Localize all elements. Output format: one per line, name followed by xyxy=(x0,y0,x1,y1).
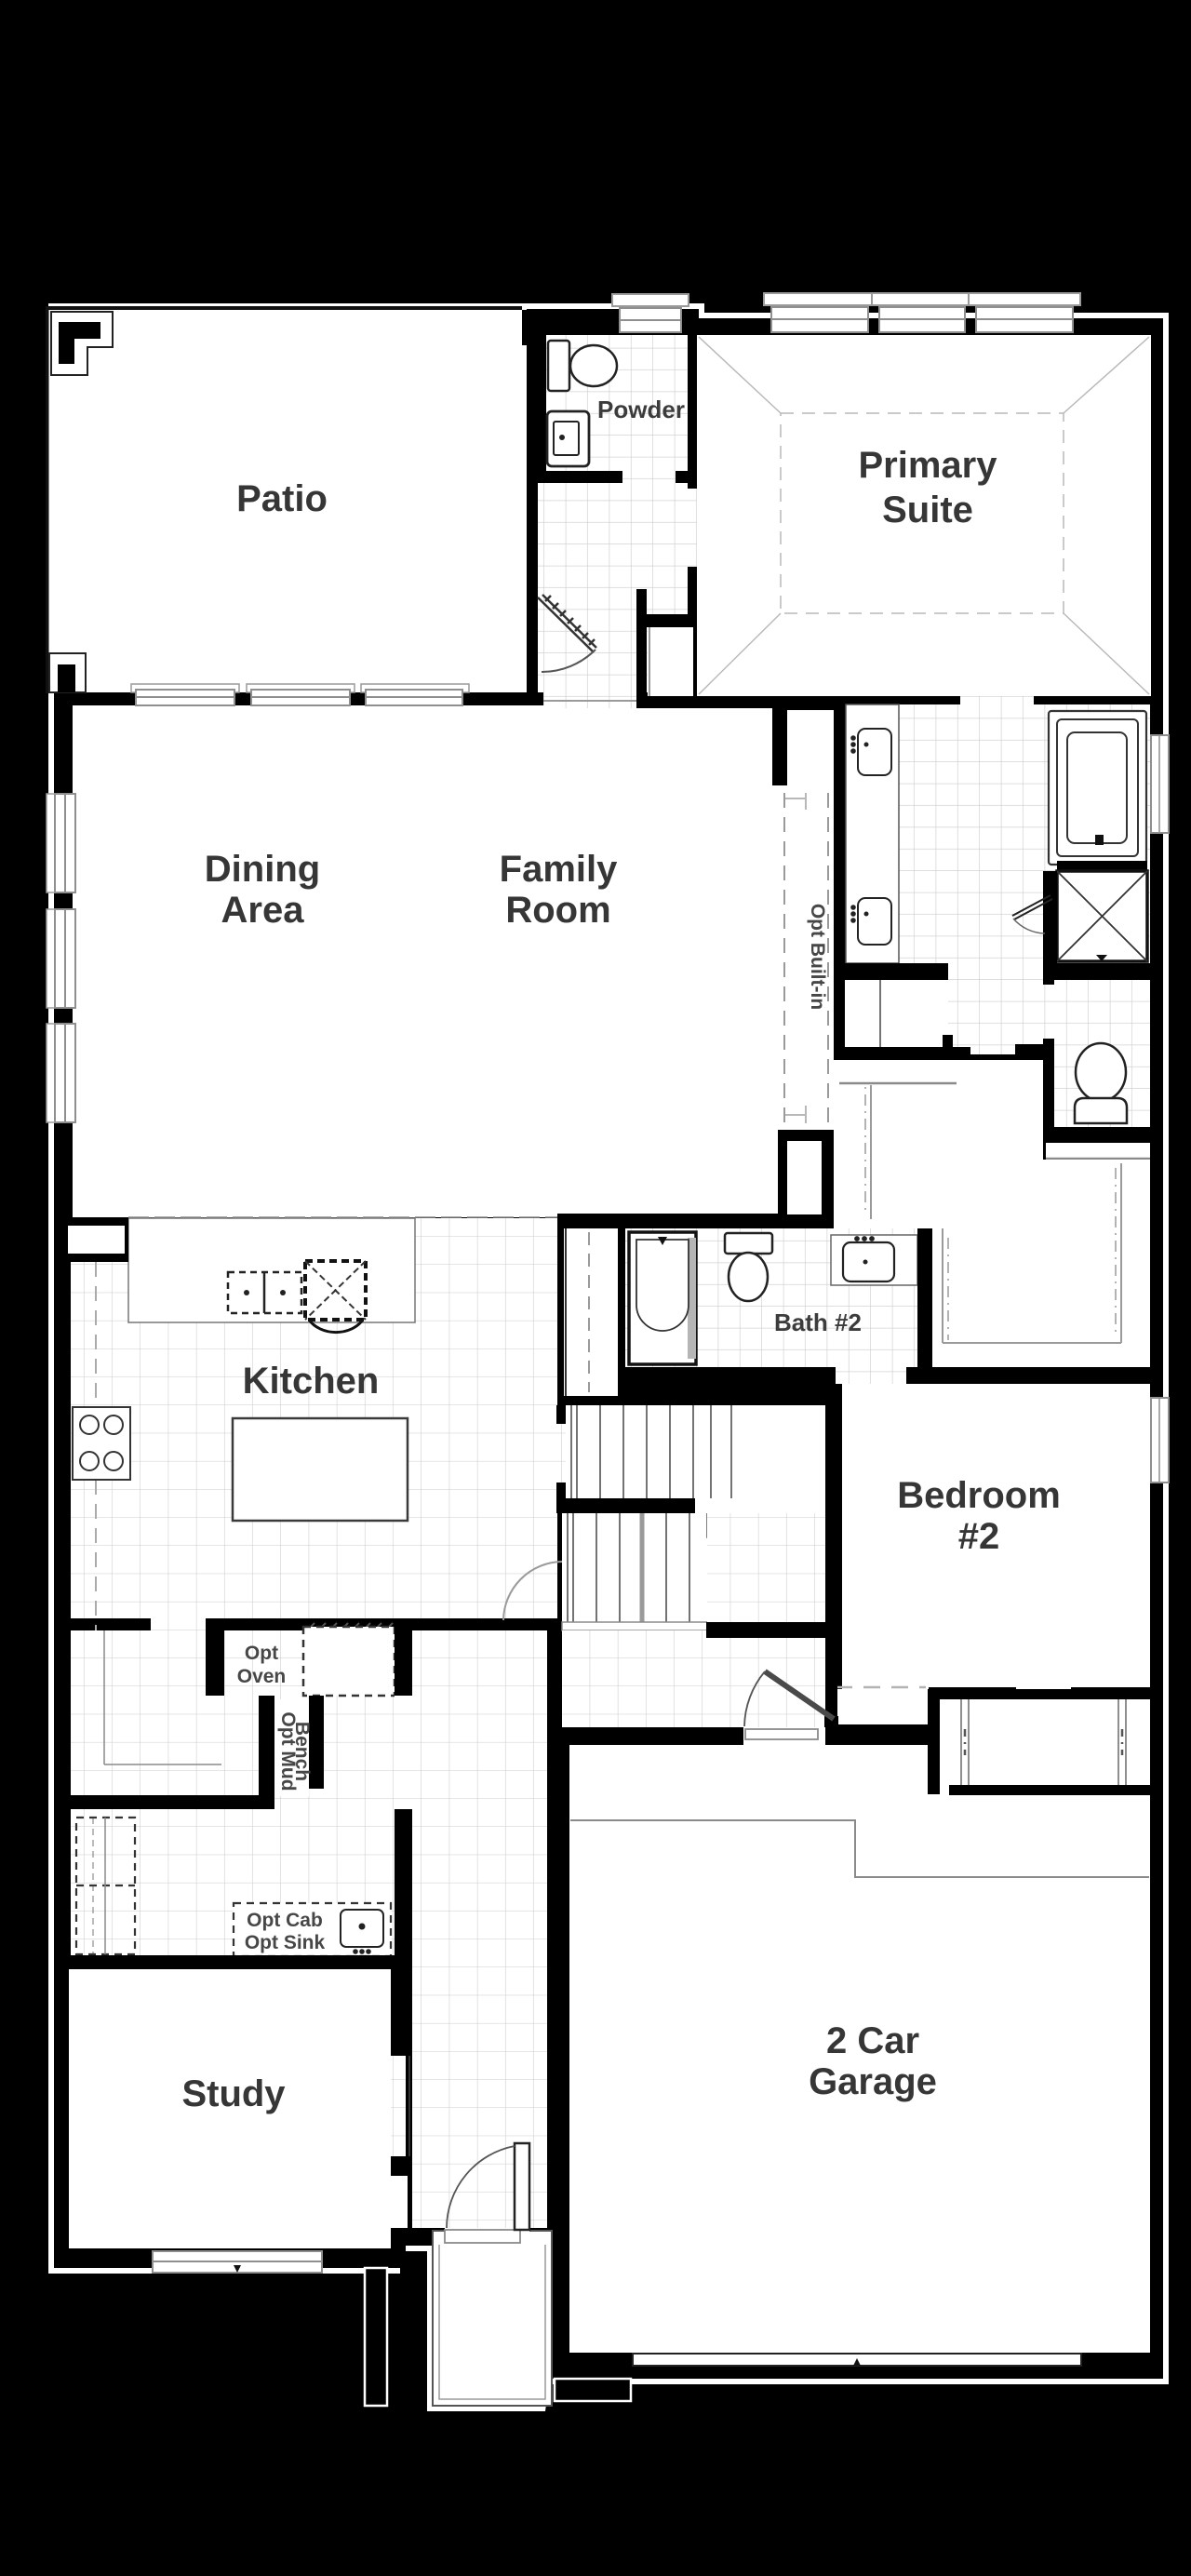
svg-text:Powder: Powder xyxy=(597,396,685,423)
svg-text:#2: #2 xyxy=(958,1516,1000,1557)
svg-text:Primary: Primary xyxy=(859,445,998,486)
svg-text:2 Car: 2 Car xyxy=(826,2020,919,2061)
svg-text:Study: Study xyxy=(181,2073,286,2114)
svg-text:Opt: Opt xyxy=(245,1643,278,1664)
svg-text:Bench: Bench xyxy=(291,1722,313,1781)
svg-text:Suite: Suite xyxy=(882,490,973,530)
svg-text:Opt Sink: Opt Sink xyxy=(245,1932,326,1953)
svg-text:Opt Cab: Opt Cab xyxy=(247,1910,323,1931)
svg-text:Patio: Patio xyxy=(236,478,328,519)
svg-text:Bedroom: Bedroom xyxy=(897,1475,1061,1516)
svg-text:Family: Family xyxy=(500,849,618,890)
svg-text:Opt Built-in: Opt Built-in xyxy=(807,904,828,1010)
svg-text:Bath #2: Bath #2 xyxy=(774,1308,862,1336)
svg-text:Kitchen: Kitchen xyxy=(243,1361,380,1402)
svg-text:Oven: Oven xyxy=(237,1666,287,1687)
svg-text:Garage: Garage xyxy=(809,2061,937,2102)
svg-text:Dining: Dining xyxy=(205,849,320,890)
svg-text:Room: Room xyxy=(505,890,610,931)
svg-text:Area: Area xyxy=(221,890,305,931)
